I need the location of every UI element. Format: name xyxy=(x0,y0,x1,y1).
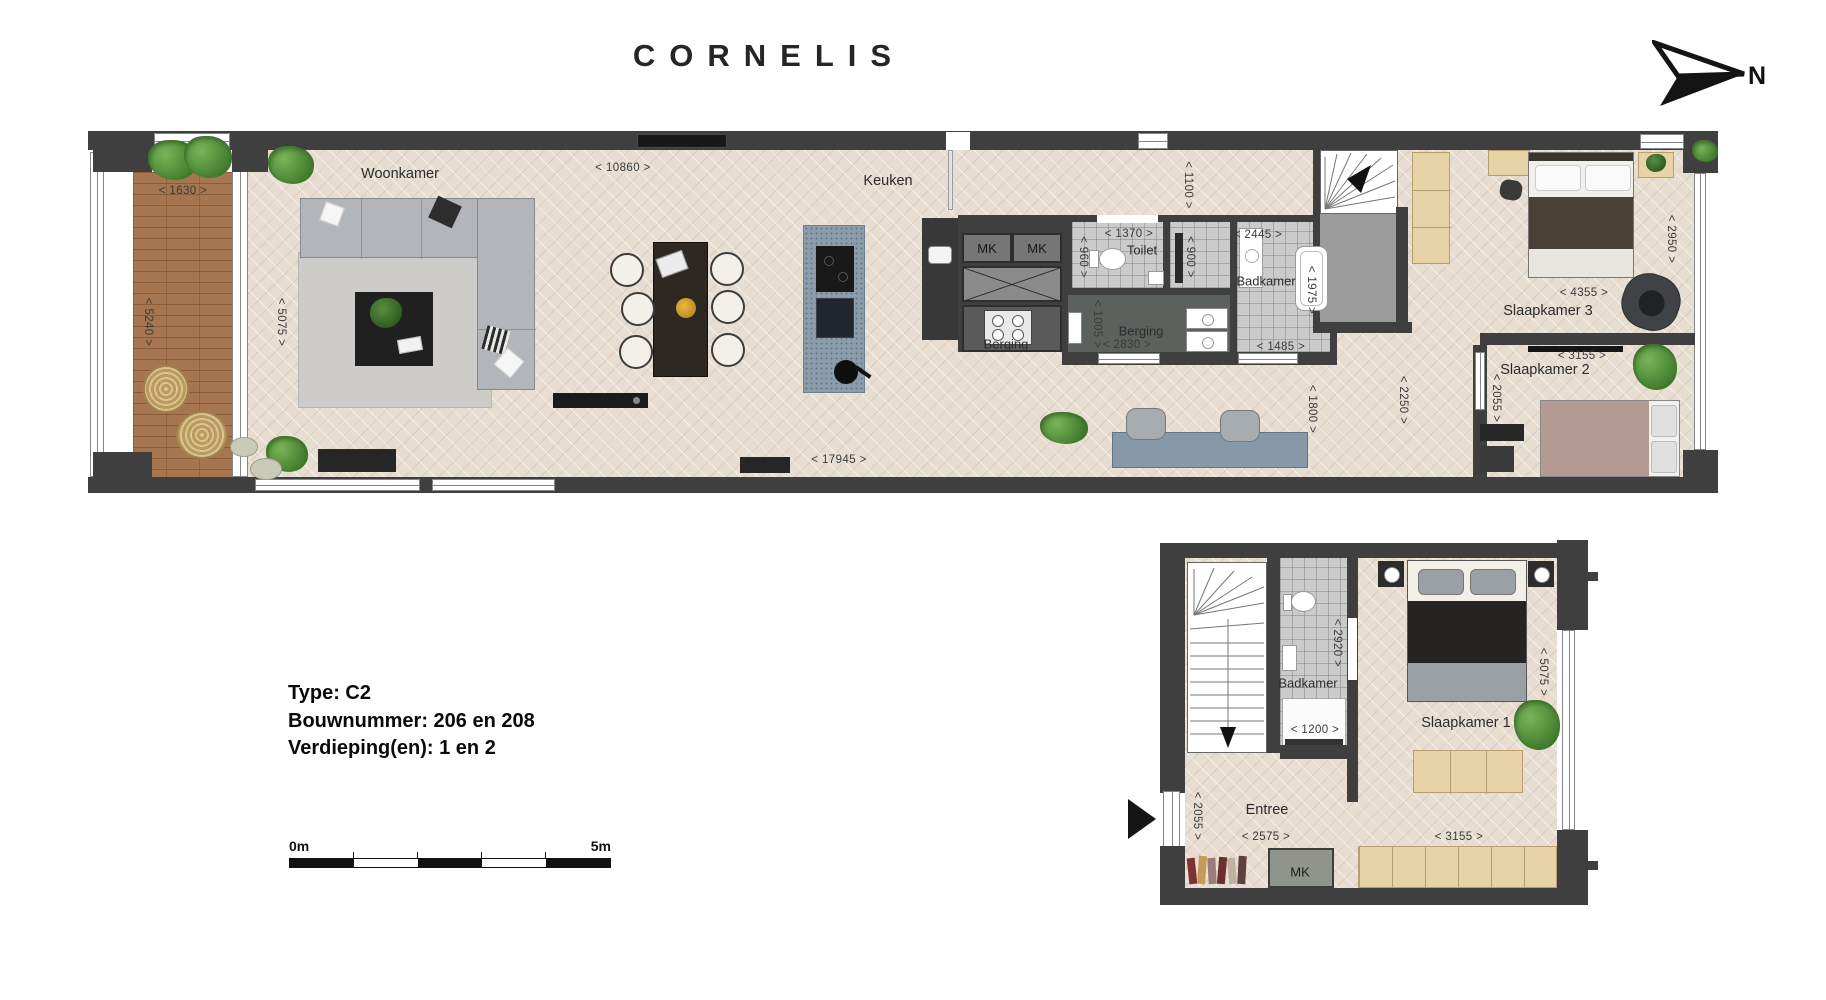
mk-closet-2: MK xyxy=(1012,233,1062,263)
stairs-floor2 xyxy=(1187,562,1267,753)
living-window-1 xyxy=(255,479,420,491)
wall-block-bl xyxy=(93,452,152,493)
mk1-label: MK xyxy=(977,241,997,256)
dim-2445: < 2445 > xyxy=(1234,229,1283,241)
dining-chair xyxy=(621,292,655,326)
plant-sk1-icon xyxy=(1514,700,1560,750)
floor2-stair-wall xyxy=(1267,558,1280,753)
dim-1630: < 1630 > xyxy=(159,185,208,197)
media-console xyxy=(318,449,396,472)
island-sink xyxy=(816,298,854,338)
bed-slaapkamer1 xyxy=(1407,560,1527,702)
kitchen-tall-cabinet xyxy=(922,218,958,340)
dim-1975: < 1975 > xyxy=(1305,266,1317,315)
plant-hall-icon xyxy=(1040,412,1088,444)
floor1-right-window xyxy=(1694,173,1706,450)
flower-bowl xyxy=(676,298,696,318)
bottom-cabinet xyxy=(740,457,790,473)
dining-chair xyxy=(610,253,644,287)
floor2-right-block-top xyxy=(1557,540,1588,630)
dim-1800: < 1800 > xyxy=(1306,385,1318,434)
room-label-entree: Entree xyxy=(1246,802,1289,818)
stairwell-wall-bottom xyxy=(1313,322,1412,333)
room-label-badkamer: Badkamer xyxy=(1236,274,1295,289)
plant-living-icon xyxy=(268,146,314,184)
dim-2055-floor2: < 2055 > xyxy=(1191,792,1203,841)
wicker-chair-2 xyxy=(176,411,228,459)
mk-closet-1: MK xyxy=(962,233,1012,263)
north-label: N xyxy=(1748,62,1766,91)
shower-glass xyxy=(1175,233,1183,283)
dining-chair xyxy=(619,335,653,369)
room-label-badkamer2: Badkamer xyxy=(1278,676,1337,691)
dim-3155-floor2: < 3155 > xyxy=(1435,831,1484,843)
bed-slaapkamer2 xyxy=(1540,400,1680,477)
shower-tray-floor2 xyxy=(1282,698,1346,748)
room-label-toilet: Toilet xyxy=(1127,243,1157,258)
terrace-sliding-door xyxy=(232,152,248,477)
dim-1100: < 1100 > xyxy=(1182,161,1194,209)
room-label-berging-small: Berging xyxy=(984,337,1029,352)
dresser-sk2 xyxy=(1480,424,1524,441)
badkamer-door xyxy=(1238,353,1298,364)
floor1-top-wall xyxy=(88,131,1718,150)
room-label-berging: Berging xyxy=(1119,324,1164,339)
room-label-keuken: Keuken xyxy=(863,173,912,189)
brand-logo: CORNELIS xyxy=(633,38,905,74)
basin-floor2 xyxy=(1282,645,1297,671)
dim-2920: < 2920 > xyxy=(1331,619,1343,668)
terrace-planter-icon xyxy=(148,136,232,184)
coffee-machine xyxy=(928,246,952,264)
floor2-left-window xyxy=(1163,791,1180,848)
plant-corner-icon xyxy=(1692,140,1718,162)
dining-chair xyxy=(711,290,745,324)
stairwell-wall-right xyxy=(1396,207,1408,333)
mk-label-floor2: MK xyxy=(1290,865,1310,880)
corridor-window xyxy=(1138,133,1168,149)
washer xyxy=(1186,308,1228,329)
nightstand-sk1-right xyxy=(1528,561,1554,587)
nightstand-sk1-left xyxy=(1378,561,1404,587)
room-label-slaapkamer1: Slaapkamer 1 xyxy=(1421,715,1510,731)
floorplan-canvas: CORNELIS N MK MK xyxy=(0,0,1826,1000)
room-label-slaapkamer2: Slaapkamer 2 xyxy=(1500,362,1589,378)
wall-nub-2 xyxy=(1588,861,1598,870)
dim-5075: < 5075 > xyxy=(275,298,287,347)
mk2-label: MK xyxy=(1027,241,1047,256)
toilet-bowl xyxy=(1099,248,1126,270)
dim-4355: < 4355 > xyxy=(1560,287,1609,299)
bench-sk1 xyxy=(1413,750,1523,793)
dim-5240: < 5240 > xyxy=(142,298,154,347)
stairs-floor1 xyxy=(1320,150,1398,214)
tv-sideboard xyxy=(553,393,648,408)
scale-end-label: 5m xyxy=(591,838,611,854)
toilet-basin xyxy=(1148,271,1164,285)
floor2-top-wall xyxy=(1160,543,1588,558)
stair-landing xyxy=(1320,214,1398,322)
wardrobe-stairs xyxy=(1412,152,1450,264)
floor2-right-block-bottom xyxy=(1557,830,1588,905)
north-arrow-icon xyxy=(1652,40,1752,110)
island-hob xyxy=(816,246,854,292)
slaapkamer3-desk xyxy=(1488,150,1530,176)
toilet-door xyxy=(1097,215,1158,223)
wall-block-br xyxy=(1683,450,1718,493)
scale-bar-track xyxy=(289,858,611,868)
scale-start-label: 0m xyxy=(289,838,309,854)
plant-sk2-icon xyxy=(1633,344,1677,390)
dim-17945: < 17945 > xyxy=(811,454,866,466)
dim-900: < 900 > xyxy=(1184,236,1196,278)
scale-bar: 0m 5m xyxy=(289,838,611,870)
dim-2055: < 2055 > xyxy=(1490,374,1502,423)
floor2-left-wall xyxy=(1160,543,1185,793)
wall-block-tl1 xyxy=(93,131,152,172)
wall-block-tl2 xyxy=(232,131,268,172)
toilet2-bowl xyxy=(1291,591,1316,612)
dark-window xyxy=(637,134,727,148)
desk-chair-1 xyxy=(1126,408,1166,440)
unit-info: Type: C2 Bouwnummer: 206 en 208 Verdiepi… xyxy=(288,680,535,763)
dim-2950: < 2950 > xyxy=(1665,215,1677,264)
pan-icon xyxy=(834,360,858,384)
entry-door-leaf xyxy=(948,150,953,210)
floor2-badkamer-wall xyxy=(1347,558,1358,802)
pouf-2 xyxy=(250,458,282,480)
cabinet-sk2 xyxy=(1480,446,1514,472)
bed-slaapkamer3 xyxy=(1528,152,1634,278)
bedroom-divider-wall xyxy=(1480,333,1695,345)
wicker-chair-1 xyxy=(143,365,189,413)
dim-1200: < 1200 > xyxy=(1291,724,1340,736)
dim-10860: < 10860 > xyxy=(595,162,650,174)
unit-bouwnummer: Bouwnummer: 206 en 208 xyxy=(288,708,535,736)
shoe-rack xyxy=(1188,854,1250,886)
slaapkamer2-door xyxy=(1475,352,1485,410)
floor2-bottom-wall xyxy=(1160,888,1588,905)
wardrobe-sk1 xyxy=(1358,846,1557,888)
floor2-badkamer-bottom-wall xyxy=(1280,745,1358,759)
dim-5075-floor2: < 5075 > xyxy=(1537,648,1549,697)
slaapkamer3-window xyxy=(1640,134,1684,149)
unit-verdieping: Verdieping(en): 1 en 2 xyxy=(288,735,535,763)
living-window-2 xyxy=(432,479,555,491)
wall-nub-1 xyxy=(1588,572,1598,581)
toilet-tank xyxy=(1089,250,1099,268)
entrance-arrow-icon xyxy=(1128,799,1156,839)
dim-3155: < 3155 > xyxy=(1558,350,1607,362)
floor2-right-window xyxy=(1562,630,1575,830)
dim-2575: < 2575 > xyxy=(1242,831,1291,843)
dim-2830: < 2830 > xyxy=(1103,339,1152,351)
room-label-slaapkamer3: Slaapkamer 3 xyxy=(1503,303,1592,319)
berging-door xyxy=(1098,353,1160,364)
entry-door-gap xyxy=(946,132,970,150)
room-label-woonkamer: Woonkamer xyxy=(361,166,439,182)
dim-1005: < 1005 > xyxy=(1091,300,1103,349)
terrace-railing xyxy=(90,152,104,477)
dim-1485: < 1485 > xyxy=(1257,341,1306,353)
unit-type: Type: C2 xyxy=(288,680,535,708)
berging-unit xyxy=(1068,312,1082,344)
dryer xyxy=(1186,331,1228,352)
desk-chair-2 xyxy=(1220,410,1260,442)
dining-chair xyxy=(711,333,745,367)
pouf-1 xyxy=(230,437,258,457)
dim-960: < 960 > xyxy=(1077,236,1089,278)
kitchen-counter-crossed xyxy=(962,266,1062,302)
dim-1370: < 1370 > xyxy=(1105,228,1154,240)
dining-chair xyxy=(710,252,744,286)
floor2-badkamer-door xyxy=(1348,618,1357,680)
dim-2250: < 2250 > xyxy=(1397,376,1409,425)
